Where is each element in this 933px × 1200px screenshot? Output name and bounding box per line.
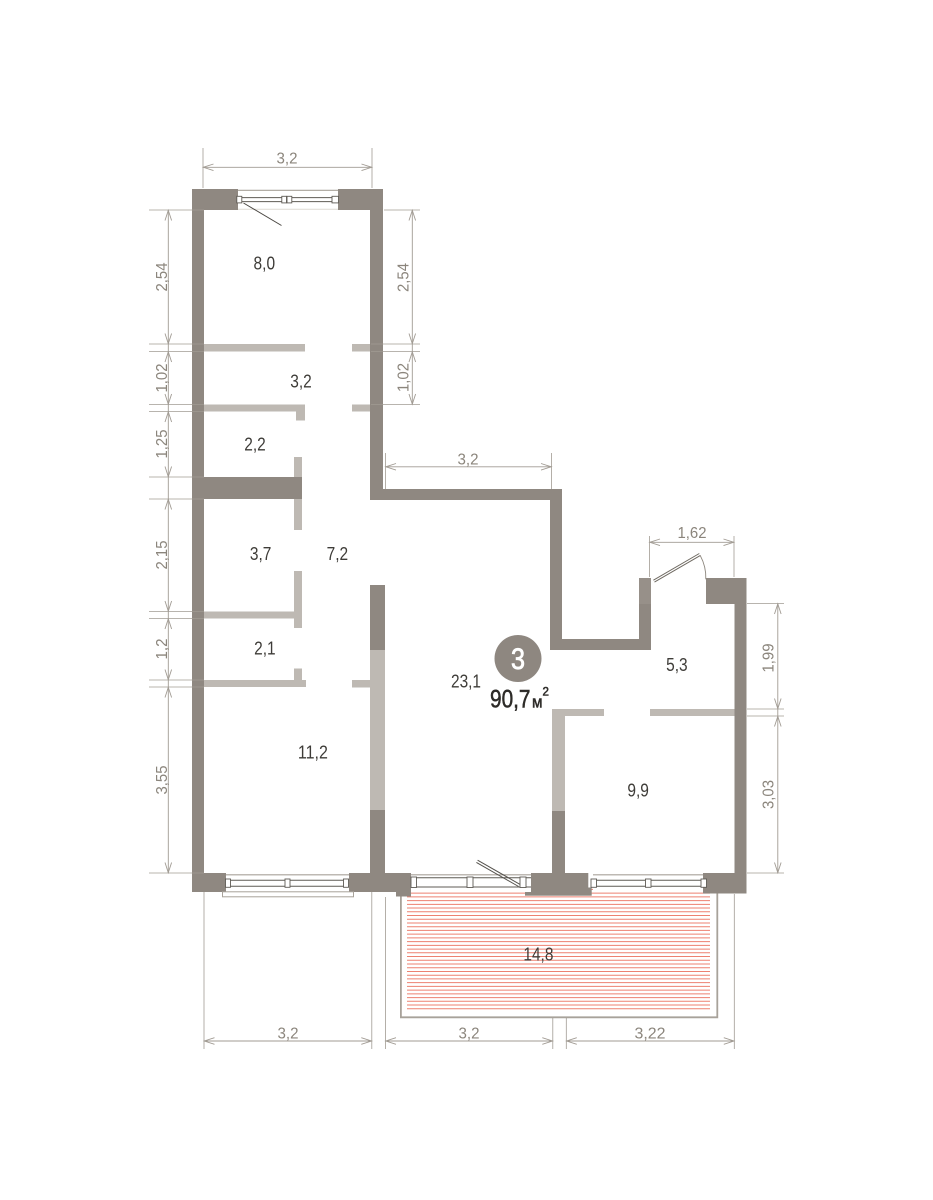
svg-text:9,9: 9,9 (627, 779, 649, 800)
svg-text:1,2: 1,2 (154, 638, 171, 659)
svg-text:1,99: 1,99 (761, 643, 778, 672)
svg-text:3,2: 3,2 (459, 1026, 480, 1043)
svg-text:3,2: 3,2 (290, 371, 312, 392)
svg-text:2,1: 2,1 (254, 637, 276, 658)
svg-text:3: 3 (511, 643, 525, 676)
svg-text:2,54: 2,54 (154, 262, 171, 291)
svg-text:11,2: 11,2 (298, 742, 328, 763)
svg-text:1,62: 1,62 (678, 525, 707, 542)
svg-text:2,54: 2,54 (396, 263, 413, 292)
svg-text:1,02: 1,02 (154, 363, 171, 392)
svg-text:2,2: 2,2 (244, 434, 266, 455)
svg-text:2,15: 2,15 (154, 540, 171, 569)
svg-text:23,1: 23,1 (451, 671, 481, 692)
svg-text:м: м (532, 692, 543, 711)
svg-text:3,55: 3,55 (154, 765, 171, 794)
svg-text:3,22: 3,22 (635, 1026, 666, 1043)
svg-text:5,3: 5,3 (666, 654, 688, 675)
svg-text:90,7: 90,7 (490, 685, 531, 713)
svg-text:3,2: 3,2 (277, 151, 298, 168)
svg-text:1,25: 1,25 (154, 429, 171, 458)
svg-text:8,0: 8,0 (254, 253, 276, 274)
svg-text:3,2: 3,2 (278, 1026, 299, 1043)
svg-text:3,03: 3,03 (761, 780, 778, 809)
svg-text:14,8: 14,8 (523, 944, 553, 965)
svg-text:3,7: 3,7 (250, 543, 272, 564)
svg-text:1,02: 1,02 (396, 363, 413, 392)
svg-text:2: 2 (543, 687, 549, 699)
svg-text:7,2: 7,2 (327, 543, 349, 564)
svg-text:3,2: 3,2 (458, 452, 479, 469)
